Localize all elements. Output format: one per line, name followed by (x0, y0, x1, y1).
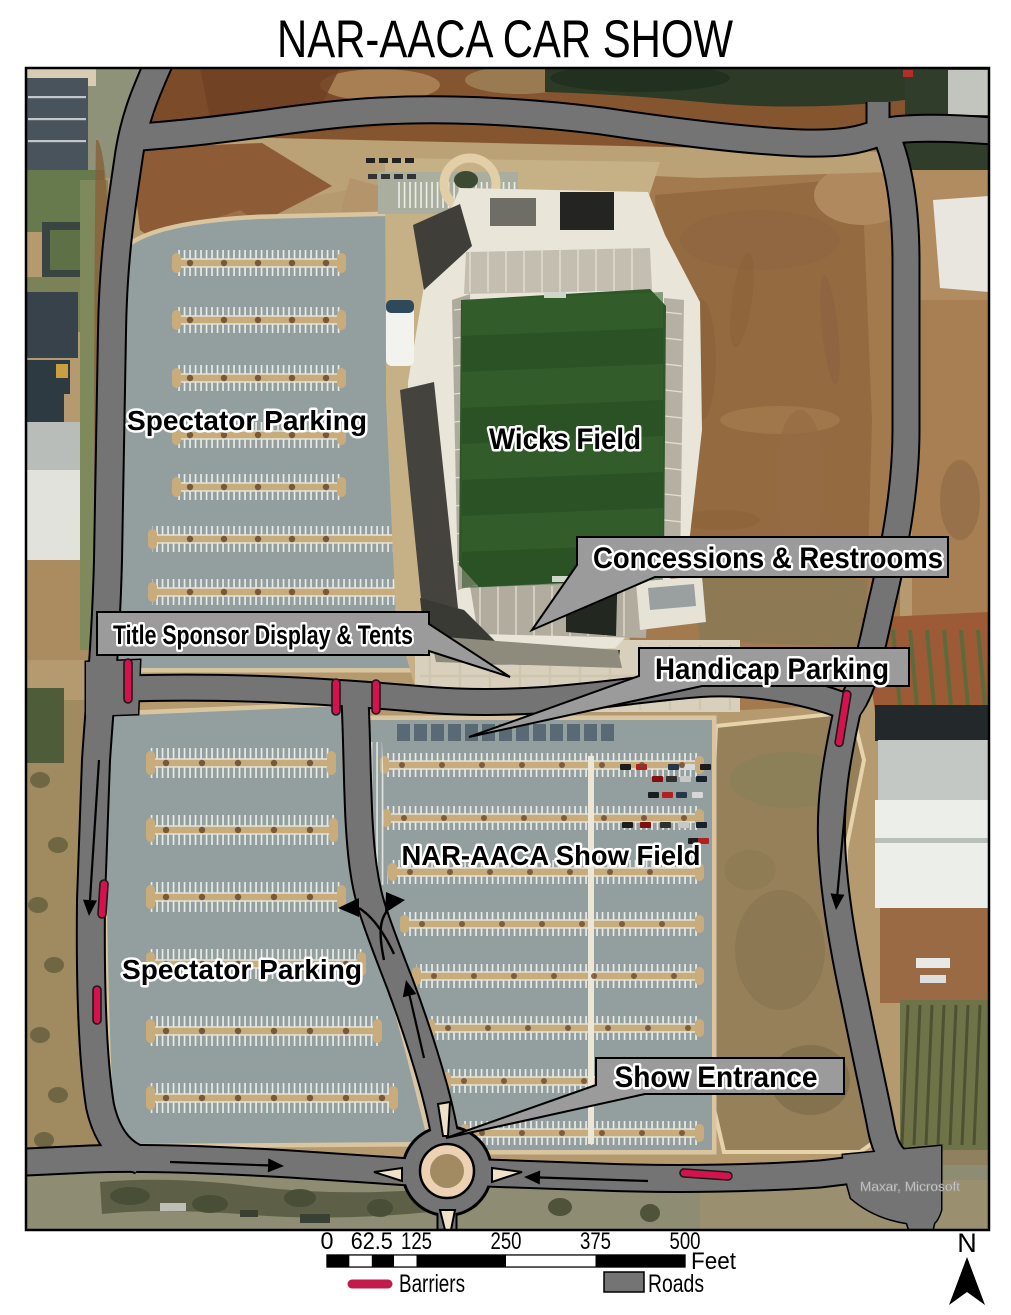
svg-text:Show Entrance: Show Entrance (615, 1061, 818, 1094)
svg-text:N: N (957, 1228, 977, 1258)
svg-text:Maxar, Microsoft: Maxar, Microsoft (860, 1179, 960, 1194)
svg-text:NAR-AACA CAR SHOW: NAR-AACA CAR SHOW (277, 10, 733, 69)
svg-text:Concessions & Restrooms: Concessions & Restrooms (593, 542, 943, 575)
svg-text:Spectator Parking: Spectator Parking (127, 405, 367, 436)
svg-text:Spectator Parking: Spectator Parking (122, 954, 362, 985)
svg-text:125: 125 (401, 1228, 432, 1255)
svg-text:NAR-AACA Show Field: NAR-AACA Show Field (402, 840, 701, 871)
svg-text:Title Sponsor Display & Tents: Title Sponsor Display & Tents (113, 620, 413, 650)
svg-text:62.5: 62.5 (351, 1228, 393, 1255)
svg-text:Handicap Parking: Handicap Parking (655, 653, 889, 686)
svg-text:375: 375 (580, 1228, 611, 1255)
svg-text:250: 250 (491, 1228, 522, 1255)
svg-text:Wicks Field: Wicks Field (489, 423, 641, 456)
svg-text:Roads: Roads (648, 1270, 704, 1298)
svg-text:Barriers: Barriers (399, 1270, 465, 1298)
svg-text:0: 0 (321, 1228, 334, 1255)
